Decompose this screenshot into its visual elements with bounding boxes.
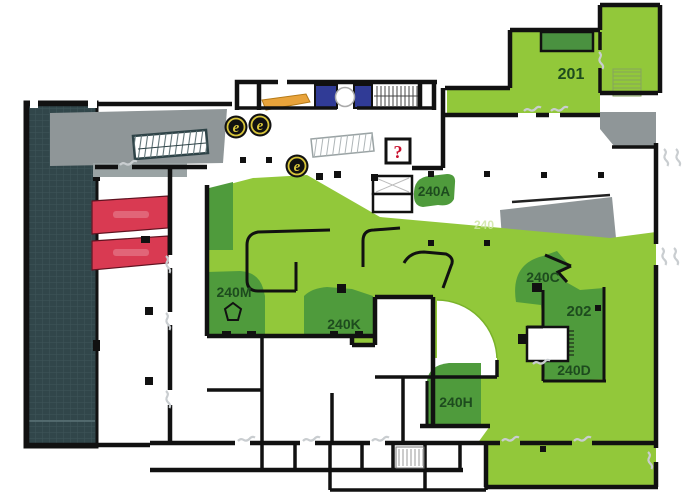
escalator-marker-3[interactable]: e: [286, 155, 309, 178]
label-201: 201: [558, 66, 585, 83]
elevator-left[interactable]: [315, 85, 337, 108]
room-240M-shape[interactable]: [207, 271, 265, 336]
label-240A: 240A: [418, 184, 451, 199]
escalator-structure: [133, 130, 208, 159]
elevator-box-lobby[interactable]: [371, 174, 412, 212]
lobby-desk: [311, 133, 374, 157]
label-240D: 240D: [557, 362, 590, 378]
unavailable-rooms[interactable]: [92, 196, 168, 270]
escalator-marker-2[interactable]: e: [249, 114, 272, 137]
staircase-bottom: [396, 447, 424, 468]
escalator-icon: e: [233, 120, 240, 136]
escalator-icon: e: [257, 118, 264, 134]
staircase-top: [374, 86, 419, 106]
floor-plan-map: e e e ? 201 202 240A 240C 240D 240H 240K…: [0, 0, 684, 500]
elevator-right[interactable]: [354, 85, 372, 108]
room-201-shape[interactable]: [447, 7, 658, 113]
column-round: [336, 88, 355, 107]
label-240-ghost: 240: [474, 218, 494, 232]
label-240K: 240K: [327, 316, 360, 332]
floor-plan-page: e e e ? 201 202 240A 240C 240D 240H 240K…: [0, 0, 684, 500]
label-202: 202: [566, 303, 591, 320]
escalator-marker-1[interactable]: e: [225, 116, 248, 139]
label-240H: 240H: [439, 394, 472, 410]
info-marker[interactable]: ?: [386, 139, 410, 163]
room-strip-shape: [209, 182, 233, 250]
room-201-block[interactable]: [447, 7, 658, 113]
escalator-icon: e: [294, 159, 301, 175]
label-240M: 240M: [216, 284, 251, 300]
question-icon: ?: [394, 142, 403, 162]
label-240C: 240C: [526, 269, 559, 285]
